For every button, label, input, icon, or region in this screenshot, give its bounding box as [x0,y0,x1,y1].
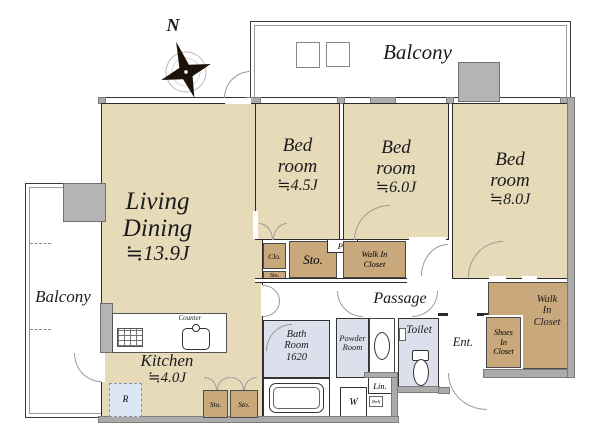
exterior-wall-br [483,369,575,378]
ac-unit-2 [326,42,350,67]
stove-icon [117,328,143,347]
wic-br-label-3: Closet [524,317,570,328]
entry-step-wall [438,387,450,394]
floor-plan: Balcony Balcony Clo. Sto. Sto. PS Walk I… [0,0,600,440]
toilet-label: Toilet [400,324,438,336]
door-arc [224,71,251,98]
faucet-icon [192,324,200,332]
shelf-label: Shelf [372,399,380,404]
bedroom-small-size: ≒4.5J [255,177,340,194]
bathtub-inner [273,387,320,409]
bedroom-mid-label-2: room [343,159,449,180]
washbasin-icon [374,332,390,360]
shoes-label-3: Closet [493,347,513,357]
exterior-wall-right [567,97,575,378]
wic-br-label-1: Walk [524,294,570,305]
closet-box: Clo. [263,243,286,269]
washer-label: W [349,397,357,408]
bath-label: Bath Room 1620 [263,329,330,363]
wall-segment [477,313,488,316]
door-arc [263,301,280,317]
ac-unit-1 [296,42,320,68]
passage-top-wall [255,278,407,283]
wic-mid-label-2: Closet [362,260,388,270]
storage-kitchen-1: Sto. [203,390,228,418]
kitchen-name-label: Kitchen [118,352,216,370]
shoes-label-1: Shoes [493,328,513,338]
washer-box: W [340,387,367,417]
powder-label-2: Room [336,343,369,352]
bedroom-mid-label-1: Bed [343,138,449,159]
bedroom-small-label: Bed room ≒4.5J [255,136,340,194]
refrigerator-label: R [123,395,129,405]
storage-kitchen-2: Sto. [230,390,258,418]
shoes-in-closet: Shoes In Closet [486,317,521,368]
counter-label: Counter [160,315,220,323]
refrigerator-box: R [109,383,142,417]
toilet-bowl-icon [413,359,429,386]
compass-north-label: N [158,16,188,35]
door-opening [522,276,537,280]
balcony-drain-mark [30,243,51,244]
bedroom-mid-size: ≒6.0J [343,179,449,196]
powder-label: Powder Room [336,334,369,352]
door-opening [253,211,258,239]
entrance-label: Ent. [441,336,485,350]
bath-size-label: 1620 [263,352,330,363]
door-opening [225,98,251,104]
balcony-drain-mark [30,329,51,330]
wic-mid-label-1: Walk In [362,249,388,259]
living-dining-label: Living Dining ≒13.9J [100,188,215,265]
entry-door-arc [448,373,487,410]
bedroom-small-label-2: room [255,157,340,178]
wall-toilet-bottom [391,386,440,393]
storage-kitchen-1-label: Sto. [210,400,221,409]
bedroom-mid-label: Bed room ≒6.0J [343,138,449,196]
wic-br-label: Walk In Closet [524,294,570,328]
linen-label: Lin. [373,381,386,391]
living-size-label: ≒13.9J [100,242,215,265]
bath-label-1: Bath [263,329,330,340]
bedroom-small-label-1: Bed [255,136,340,157]
passage-label: Passage [348,290,452,307]
bedroom-large-size: ≒8.0J [452,191,568,208]
bath-label-2: Room [263,340,330,351]
wall-segment [438,313,448,316]
balcony-left-label: Balcony [26,288,100,306]
walk-in-closet-mid: Walk In Closet [343,241,406,278]
door-arc [263,285,280,301]
bedroom-large-label-1: Bed [452,150,568,171]
balcony-top-label: Balcony [355,41,480,64]
pillar [458,62,500,102]
storage-big-label: Sto. [303,252,323,268]
kitchen-label: Kitchen ≒4.0J [118,352,216,387]
storage-kitchen-2-label: Sto. [238,400,249,409]
shelf-box: Shelf [369,396,383,407]
living-label-1: Living [100,188,215,215]
door-opening [409,237,446,241]
shoes-label-2: In [493,338,513,348]
bedroom-large-label: Bed room ≒8.0J [452,150,568,208]
wall-segment [391,373,398,417]
kitchen-size-label: ≒4.0J [118,370,216,386]
wall-segment [364,372,398,378]
bedroom-large-label-2: room [452,171,568,192]
door-arc [421,244,448,276]
wic-br-label-2: In [524,305,570,316]
living-label-2: Dining [100,215,215,242]
linen-box: Lin. [368,377,392,394]
closet-label: Clo. [268,252,281,261]
